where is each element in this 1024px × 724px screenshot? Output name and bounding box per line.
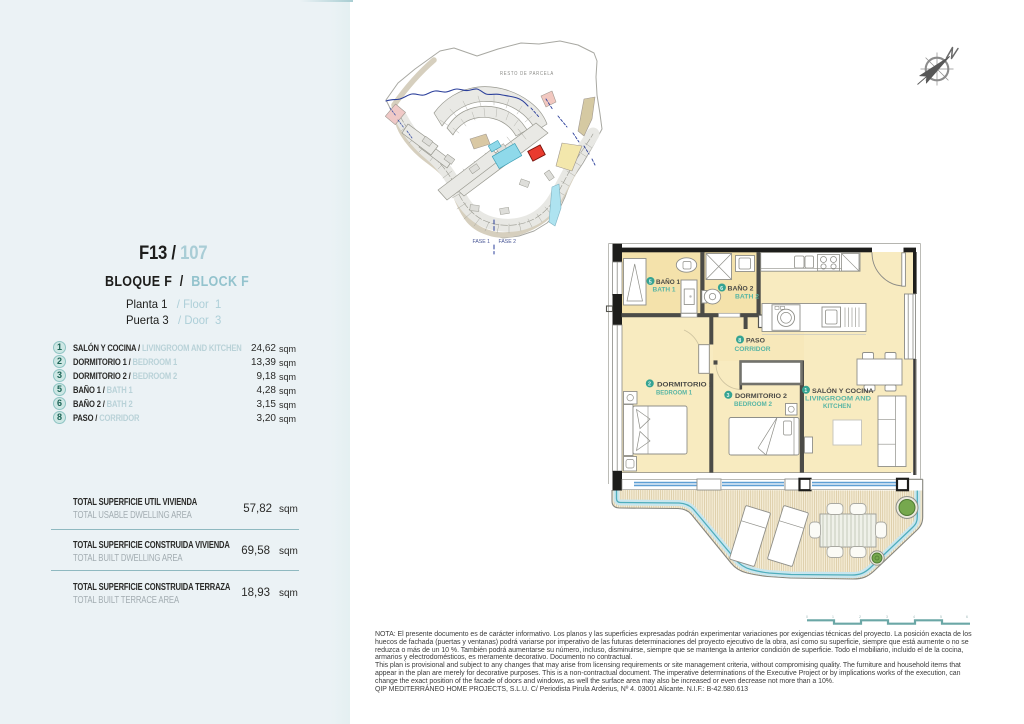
svg-text:CORRIDOR: CORRIDOR	[735, 346, 771, 353]
svg-text:3: 3	[727, 393, 730, 399]
svg-text:0: 0	[806, 615, 808, 619]
svg-text:5: 5	[940, 615, 942, 619]
svg-text:BAÑO 1: BAÑO 1	[656, 277, 680, 286]
svg-text:5: 5	[649, 279, 652, 285]
svg-text:DORMITORIO 1: DORMITORIO 1	[657, 382, 713, 389]
svg-text:6: 6	[966, 615, 968, 619]
svg-text:2: 2	[859, 615, 861, 619]
svg-text:BEDROOM 2: BEDROOM 2	[734, 401, 772, 408]
svg-text:KITCHEN: KITCHEN	[823, 403, 851, 410]
svg-text:BAÑO 2: BAÑO 2	[728, 284, 754, 293]
svg-text:2: 2	[648, 382, 651, 388]
svg-text:DORMITORIO 2: DORMITORIO 2	[735, 393, 787, 400]
svg-text:4: 4	[913, 615, 915, 619]
svg-text:1: 1	[804, 388, 807, 394]
svg-text:LIVINGROOM AND: LIVINGROOM AND	[805, 396, 871, 403]
svg-text:BATH 2: BATH 2	[735, 293, 759, 300]
svg-text:BATH 1: BATH 1	[653, 286, 676, 293]
svg-text:6: 6	[720, 286, 723, 292]
svg-text:1: 1	[832, 615, 834, 619]
svg-text:FASE 1: FASE 1	[473, 239, 491, 245]
svg-text:FASE 2: FASE 2	[499, 239, 517, 245]
svg-text:3: 3	[886, 615, 888, 619]
svg-text:BEDROOM 1: BEDROOM 1	[656, 389, 692, 396]
svg-text:RESTO DE PARCELA: RESTO DE PARCELA	[500, 71, 554, 77]
svg-text:PASO: PASO	[746, 338, 765, 345]
svg-text:8: 8	[738, 338, 741, 344]
svg-text:SALÓN Y COCINA: SALÓN Y COCINA	[812, 386, 874, 395]
